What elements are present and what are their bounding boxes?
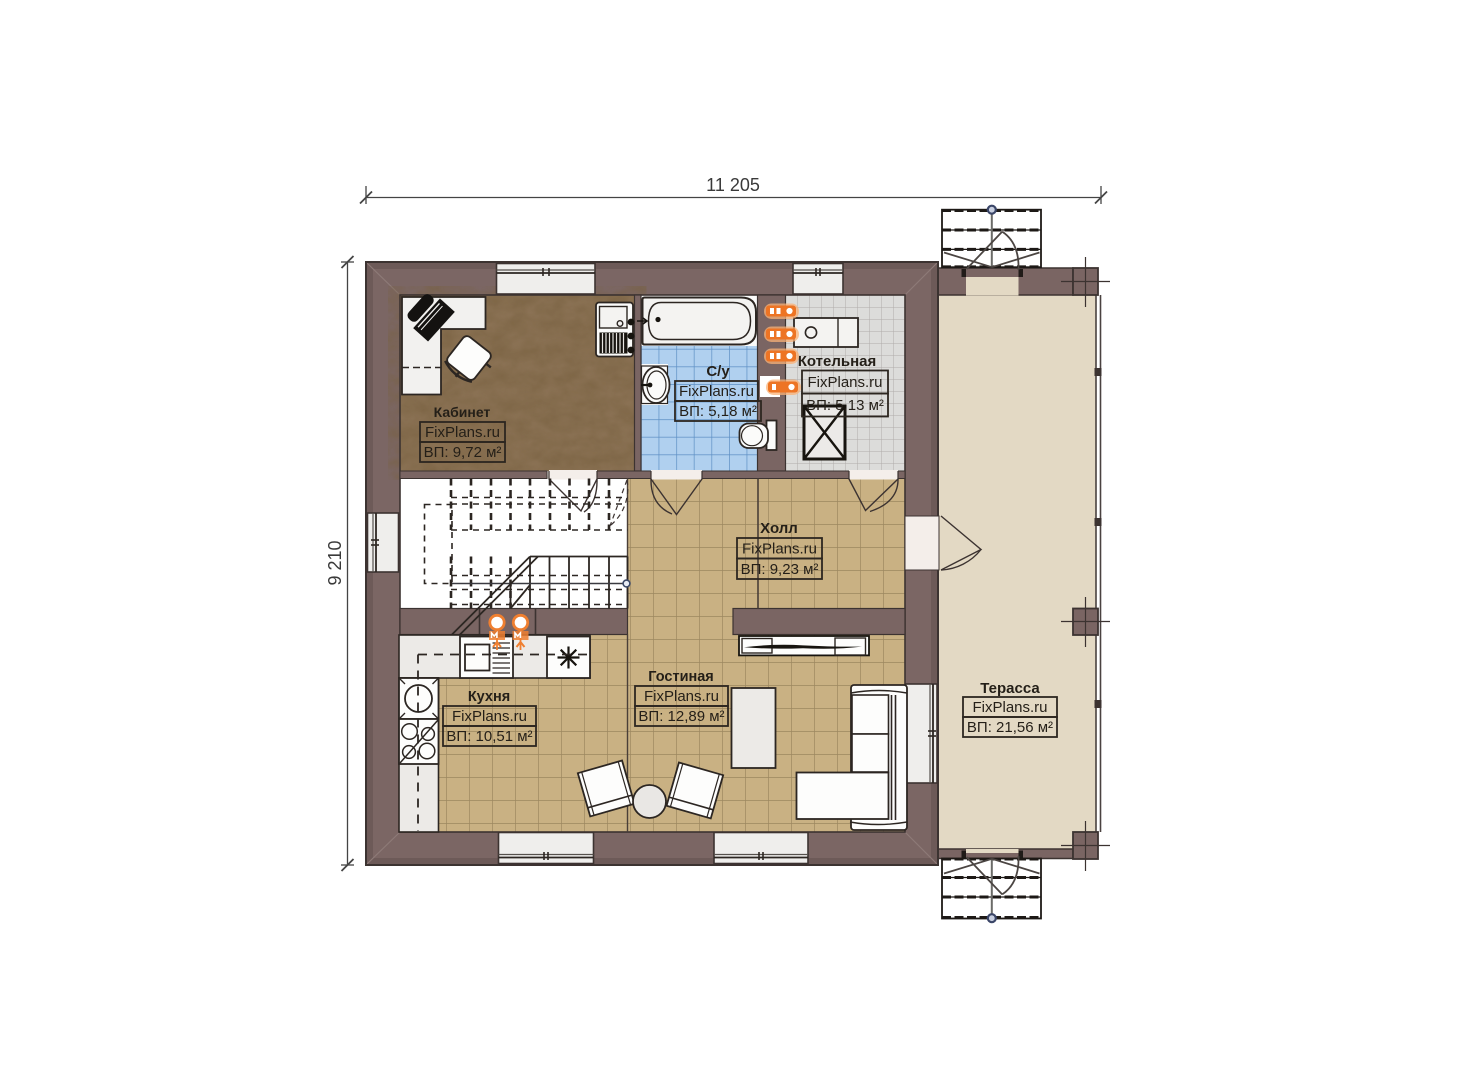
svg-text:9 210: 9 210: [325, 540, 345, 585]
svg-text:Кухня: Кухня: [468, 689, 510, 705]
svg-text:ВП: 9,72 м²: ВП: 9,72 м²: [424, 444, 502, 461]
svg-text:ВП: 21,56 м²: ВП: 21,56 м²: [967, 719, 1053, 736]
svg-text:FixPlans.ru: FixPlans.ru: [425, 424, 500, 441]
svg-text:ВП: 9,23 м²: ВП: 9,23 м²: [741, 561, 819, 578]
svg-text:ВП: 12,89 м²: ВП: 12,89 м²: [638, 708, 724, 725]
svg-text:Гостиная: Гостиная: [648, 669, 714, 685]
svg-text:С/у: С/у: [706, 363, 730, 380]
svg-text:Котельная: Котельная: [798, 353, 877, 370]
svg-text:11 205: 11 205: [706, 175, 760, 195]
svg-text:FixPlans.ru: FixPlans.ru: [679, 383, 754, 400]
svg-text:ВП: 5,18 м²: ВП: 5,18 м²: [679, 403, 757, 420]
svg-text:Холл: Холл: [760, 520, 798, 537]
svg-text:ВП: 5,13 м²: ВП: 5,13 м²: [806, 397, 884, 414]
svg-text:FixPlans.ru: FixPlans.ru: [452, 708, 527, 725]
svg-text:FixPlans.ru: FixPlans.ru: [742, 541, 817, 558]
svg-text:Терасса: Терасса: [980, 680, 1040, 697]
svg-text:FixPlans.ru: FixPlans.ru: [972, 699, 1047, 716]
svg-text:ВП: 10,51 м²: ВП: 10,51 м²: [446, 728, 532, 745]
svg-text:Кабинет: Кабинет: [434, 404, 491, 420]
svg-text:FixPlans.ru: FixPlans.ru: [644, 688, 719, 705]
svg-text:FixPlans.ru: FixPlans.ru: [807, 374, 882, 391]
